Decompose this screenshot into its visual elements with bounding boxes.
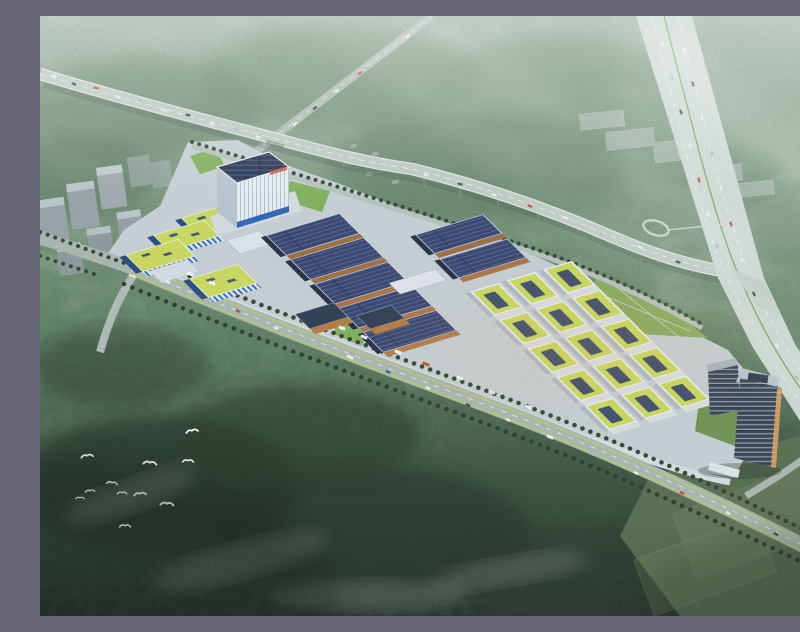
atmosphere [40,16,800,616]
top-haze [40,16,800,206]
aerial-rendering: Aerial rendering of a solar-powered indu… [40,16,800,616]
rendering-canvas [40,16,800,616]
